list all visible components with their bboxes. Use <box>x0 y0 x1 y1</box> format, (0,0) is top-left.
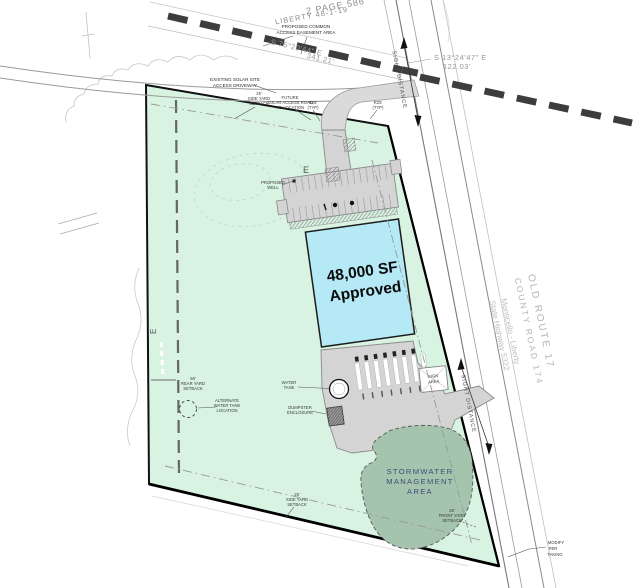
radius-label-2b: (TYP) <box>373 105 385 110</box>
dumpster-label-2: ENCLOSURE <box>287 410 313 415</box>
future-road-label-3: RE-LOCATION <box>276 105 304 110</box>
taking-label-3: TAKING <box>547 552 562 557</box>
stormwater-label-3: AREA <box>407 487 433 496</box>
water-tank-label-2: TANK <box>284 385 295 390</box>
taking-label-1: MODIFY <box>548 540 564 545</box>
site-plan-drawing: 48,000 SF Approved SIGN AREA STORMWATER … <box>0 0 633 588</box>
taking-label-2: PER <box>549 546 558 551</box>
hatched-island-2 <box>343 138 356 152</box>
proposed-well-label-2: WELL <box>267 185 279 190</box>
bearing-2: S 13°24'47" E <box>434 53 487 62</box>
easement-label-1: PROPOSED COMMON <box>282 24 331 29</box>
stormwater-label-1: STORMWATER <box>387 467 454 476</box>
site-plan-canvas: 48,000 SF Approved SIGN AREA STORMWATER … <box>0 0 633 588</box>
site-dot-2 <box>350 201 354 205</box>
easement-label-2: ACCESS EASEMENT AREA <box>277 30 337 35</box>
building: 48,000 SF Approved <box>305 219 414 347</box>
sight-distance-top: SIGHT DISTANCE <box>390 50 407 109</box>
sign-area: SIGN AREA <box>419 366 448 393</box>
existing-driveway-label-1: EXISTING SOLAR SITE <box>210 77 260 82</box>
rear-setback-label-3: SETBACK <box>183 386 203 391</box>
radius-label-1b: (TYP) <box>308 105 320 110</box>
side-setback-bottom-3: SETBACK <box>287 502 307 507</box>
existing-driveway-label-2: ACCESS DRIVEWAY <box>213 83 257 88</box>
sight-arrow-up-1 <box>401 37 408 49</box>
sight-arrow-up-2 <box>458 358 465 370</box>
bearing-2-length: 122.03' <box>443 62 471 71</box>
water-tank <box>330 380 349 399</box>
site-dot-1 <box>333 203 337 207</box>
stormwater-label-2: MANAGEMENT <box>386 477 453 486</box>
sight-arrow-down-2 <box>486 443 493 455</box>
dumpster-enclosure <box>327 406 344 426</box>
alt-tank-label-3: LOCATION <box>216 408 237 413</box>
hatched-island-1 <box>325 167 340 182</box>
easement-marker-e2: E <box>149 329 158 334</box>
front-setback-label-3: SETBACK <box>442 518 462 523</box>
side-setback-top-3: SETBACK <box>249 101 269 106</box>
easement-marker-e1: E <box>303 165 309 175</box>
